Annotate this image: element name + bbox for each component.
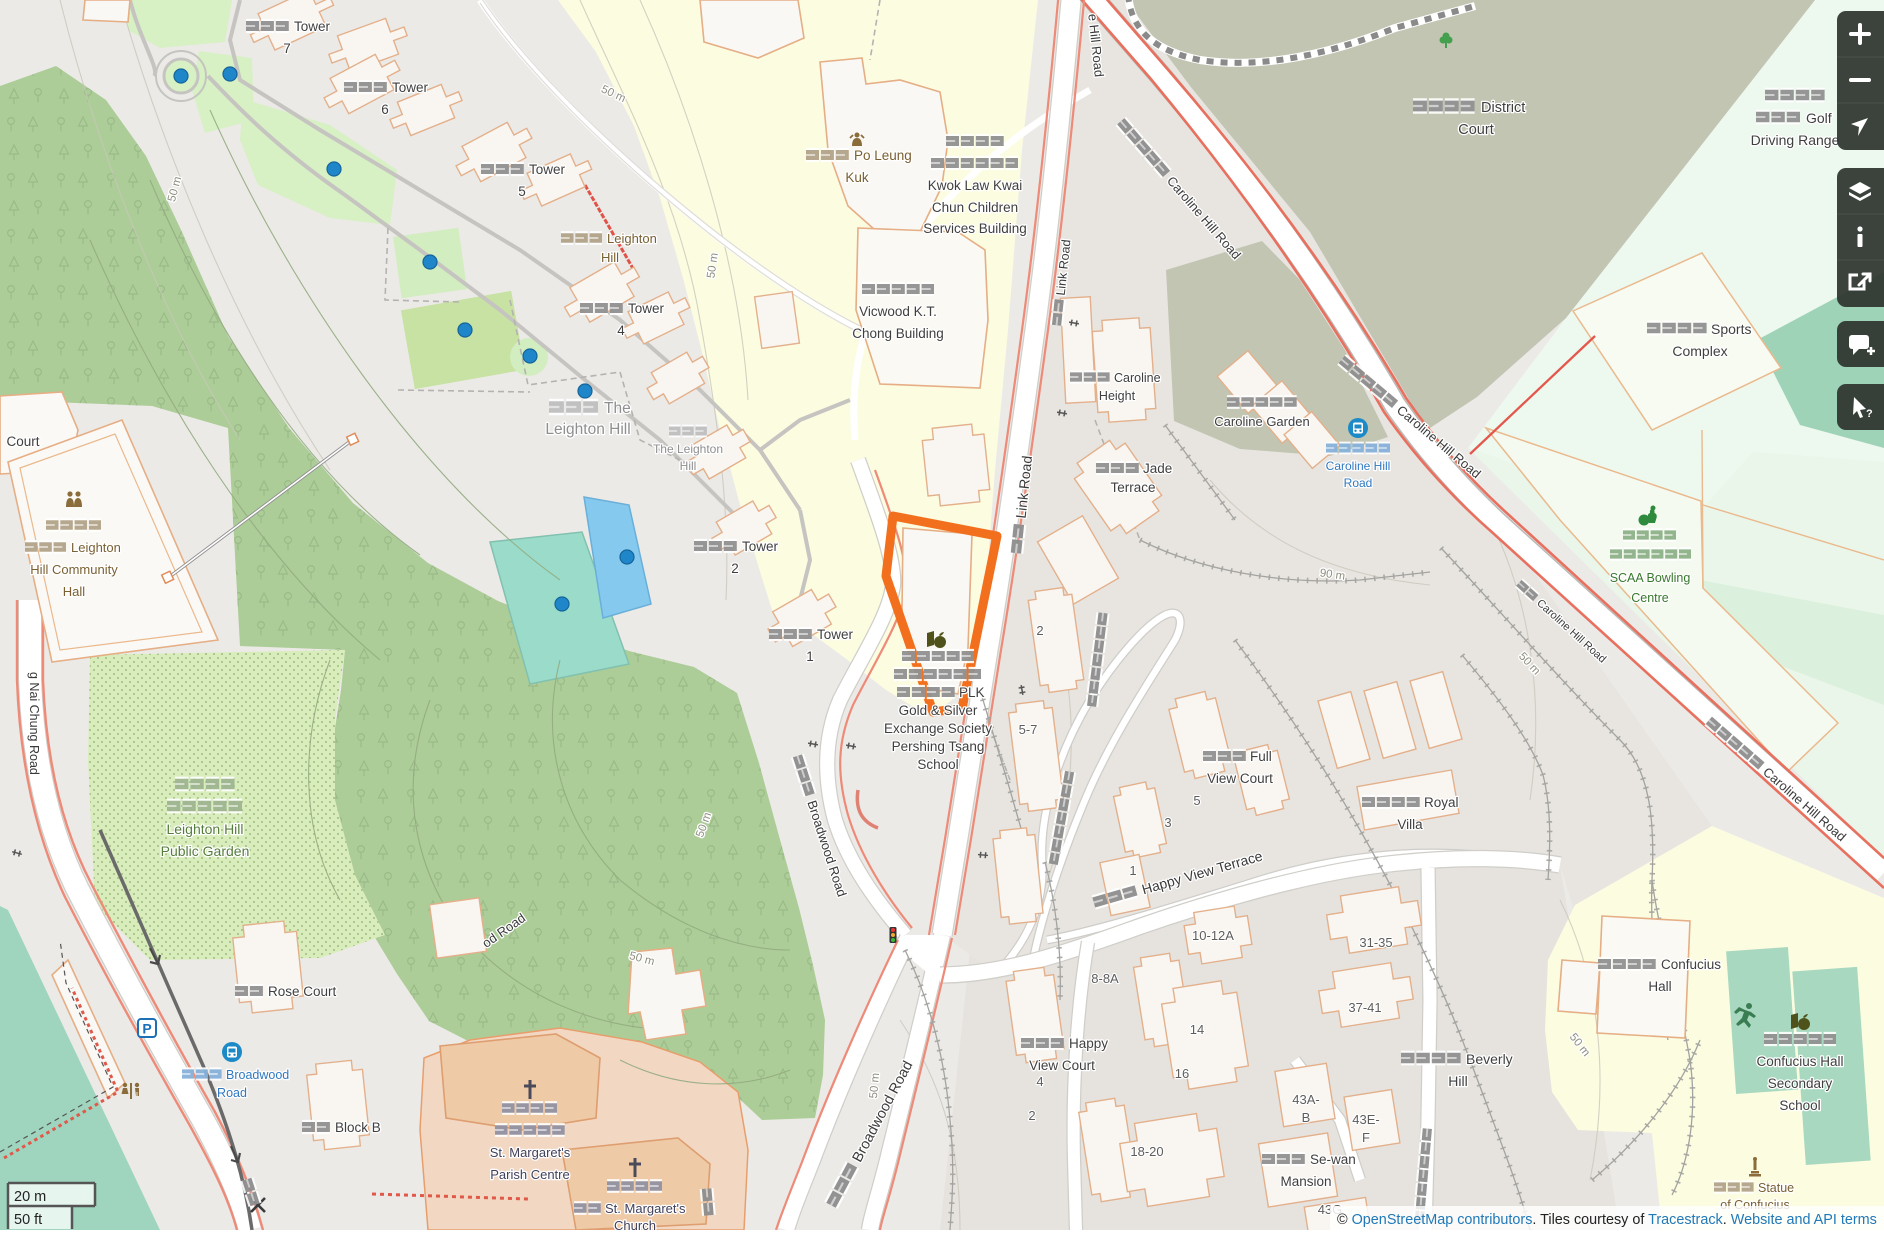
svg-text:Po Leung: Po Leung <box>854 148 912 163</box>
svg-text:View Court: View Court <box>1207 771 1273 786</box>
svg-text:50 ft: 50 ft <box>14 1212 42 1228</box>
svg-text:18-20: 18-20 <box>1130 1144 1163 1159</box>
svg-text:Caroline: Caroline <box>1114 371 1161 385</box>
svg-text:Caroline Garden: Caroline Garden <box>1214 414 1309 429</box>
svg-text:Happy: Happy <box>1069 1036 1108 1051</box>
svg-text:Hill Community: Hill Community <box>30 562 118 577</box>
svg-text:Public Garden: Public Garden <box>161 843 250 859</box>
svg-text:37-41: 37-41 <box>1348 1000 1381 1015</box>
svg-text:B: B <box>1302 1110 1311 1125</box>
svg-text:Road: Road <box>1344 476 1373 490</box>
svg-text:Tower: Tower <box>392 80 429 95</box>
svg-text:St. Margaret's: St. Margaret's <box>490 1145 571 1160</box>
svg-text:6: 6 <box>381 102 389 117</box>
svg-text:Parish Centre: Parish Centre <box>490 1167 569 1182</box>
svg-text:Royal: Royal <box>1424 795 1459 810</box>
svg-text:Court: Court <box>1458 122 1493 138</box>
svg-text:Vicwood K.T.: Vicwood K.T. <box>859 304 937 319</box>
svg-text:Tower: Tower <box>294 19 331 34</box>
svg-text:Kwok Law Kwai: Kwok Law Kwai <box>928 178 1023 193</box>
svg-text:Leighton Hill: Leighton Hill <box>545 421 630 438</box>
svg-text:1: 1 <box>806 649 814 664</box>
svg-text:Rose Court: Rose Court <box>268 984 337 999</box>
svg-text:Court: Court <box>6 434 39 449</box>
svg-text:?: ? <box>1866 408 1873 420</box>
svg-text:Secondary: Secondary <box>1768 1076 1833 1091</box>
svg-text:43E-: 43E- <box>1352 1112 1379 1127</box>
svg-text:8-8A: 8-8A <box>1091 971 1119 986</box>
svg-text:The: The <box>604 400 631 417</box>
svg-text:Jade: Jade <box>1143 461 1172 476</box>
svg-text:Leighton: Leighton <box>607 231 657 246</box>
svg-text:Terrace: Terrace <box>1110 480 1155 495</box>
svg-text:Hill: Hill <box>601 250 619 265</box>
svg-text:Tower: Tower <box>628 301 665 316</box>
svg-text:Hall: Hall <box>63 584 86 599</box>
svg-text:F: F <box>1362 1130 1370 1145</box>
svg-text:31-35: 31-35 <box>1359 935 1392 950</box>
svg-text:Hill: Hill <box>680 459 697 473</box>
svg-text:16: 16 <box>1175 1066 1189 1081</box>
svg-text:Complex: Complex <box>1672 343 1727 359</box>
svg-text:Tower: Tower <box>529 162 566 177</box>
svg-text:g Nai Chung Road: g Nai Chung Road <box>27 672 41 775</box>
svg-text:2: 2 <box>1036 623 1043 638</box>
svg-text:5-7: 5-7 <box>1019 722 1038 737</box>
svg-text:The Leighton: The Leighton <box>653 442 723 456</box>
svg-text:4: 4 <box>1036 1074 1043 1089</box>
svg-text:7: 7 <box>283 41 291 56</box>
svg-text:Chun Children: Chun Children <box>932 200 1018 215</box>
svg-text:St. Margaret's: St. Margaret's <box>605 1201 686 1216</box>
svg-text:District: District <box>1481 100 1525 116</box>
svg-text:3: 3 <box>1164 815 1171 830</box>
svg-text:Block B: Block B <box>335 1120 381 1135</box>
svg-text:Confucius: Confucius <box>1661 957 1721 972</box>
svg-text:Kuk: Kuk <box>845 170 869 185</box>
svg-text:Pershing Tsang: Pershing Tsang <box>892 739 985 754</box>
svg-text:Mansion: Mansion <box>1280 1174 1331 1189</box>
svg-text:Hall: Hall <box>1648 979 1671 994</box>
svg-text:Road: Road <box>217 1086 247 1100</box>
svg-text:Height: Height <box>1099 389 1136 403</box>
svg-text:Confucius Hall: Confucius Hall <box>1756 1054 1843 1069</box>
svg-text:43A-: 43A- <box>1292 1092 1319 1107</box>
svg-text:Beverly: Beverly <box>1466 1051 1513 1067</box>
svg-text:Golf: Golf <box>1806 110 1832 126</box>
svg-text:Leighton Hill: Leighton Hill <box>166 821 243 837</box>
svg-text:Tower: Tower <box>817 627 854 642</box>
svg-text:5: 5 <box>1193 793 1200 808</box>
svg-text:Caroline Hill: Caroline Hill <box>1326 459 1391 473</box>
svg-text:Broadwood: Broadwood <box>226 1068 289 1082</box>
svg-text:Se-wan: Se-wan <box>1310 1152 1356 1167</box>
svg-text:Centre: Centre <box>1631 591 1669 605</box>
svg-text:2: 2 <box>731 561 739 576</box>
svg-text:Full: Full <box>1250 749 1272 764</box>
svg-text:School: School <box>917 757 958 772</box>
svg-text:50 m: 50 m <box>868 1072 882 1099</box>
svg-text:5: 5 <box>518 184 526 199</box>
svg-text:SCAA Bowling: SCAA Bowling <box>1610 571 1691 585</box>
svg-text:Driving Range: Driving Range <box>1751 132 1840 148</box>
svg-text:14: 14 <box>1190 1022 1204 1037</box>
svg-text:Sports: Sports <box>1711 321 1751 337</box>
svg-text:School: School <box>1779 1098 1820 1113</box>
svg-text:Chong Building: Chong Building <box>852 326 944 341</box>
svg-text:Statue: Statue <box>1758 1181 1794 1195</box>
svg-text:Villa: Villa <box>1397 817 1423 832</box>
svg-text:Church: Church <box>614 1218 656 1230</box>
svg-text:© OpenStreetMap contributors.: © OpenStreetMap contributors. Tiles cour… <box>1337 1212 1877 1228</box>
svg-text:Tower: Tower <box>742 539 779 554</box>
svg-text:1: 1 <box>1129 863 1136 878</box>
svg-text:Exchange Society: Exchange Society <box>884 721 992 736</box>
svg-text:Leighton: Leighton <box>71 540 121 555</box>
svg-text:4: 4 <box>617 323 625 338</box>
svg-text:20 m: 20 m <box>14 1189 46 1205</box>
svg-text:Services Building: Services Building <box>923 221 1027 236</box>
svg-text:10-12A: 10-12A <box>1192 928 1234 943</box>
svg-text:PLK: PLK <box>959 685 985 700</box>
svg-text:View Court: View Court <box>1029 1058 1095 1073</box>
svg-text:Hill: Hill <box>1448 1073 1467 1089</box>
svg-text:P: P <box>142 1021 151 1037</box>
svg-text:Gold & Silver: Gold & Silver <box>899 703 978 718</box>
svg-text:2: 2 <box>1028 1108 1035 1123</box>
